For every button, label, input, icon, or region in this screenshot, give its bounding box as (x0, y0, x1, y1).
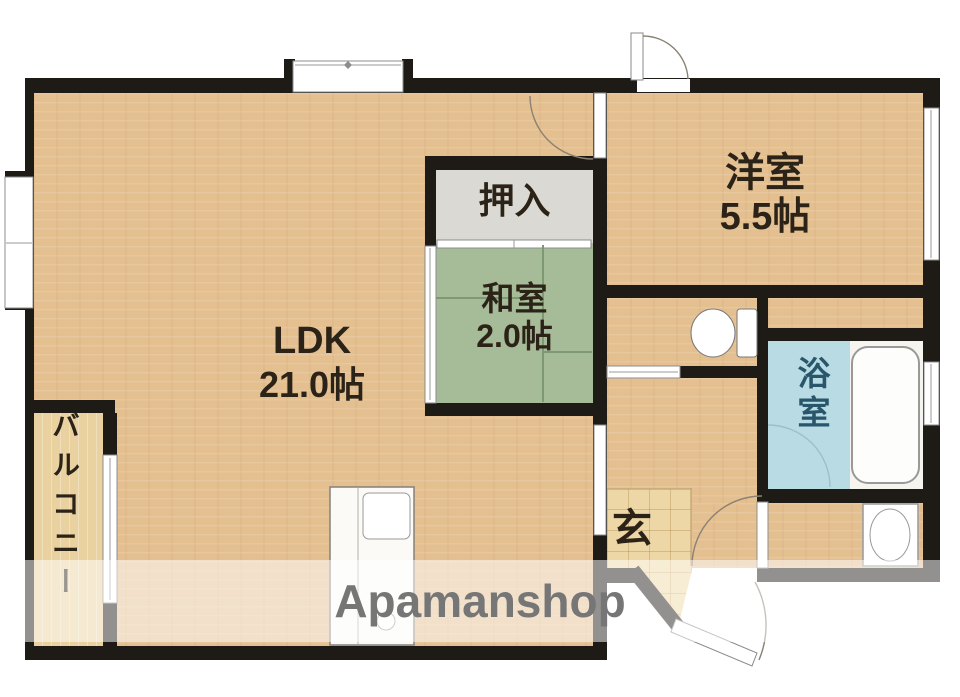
wall-east-horizontal (593, 285, 940, 298)
wall-washitsu-bottom (425, 403, 607, 416)
western-room-name: 洋室 (725, 151, 805, 195)
wall-bath-bottom (757, 489, 923, 503)
wall-oshiire-left (425, 156, 436, 248)
oshiire-label: 押入 (436, 180, 593, 221)
ldk-label: LDK 21.0帖 (212, 320, 412, 405)
ldk-size: 21.0帖 (212, 364, 412, 405)
wall-bottom-left (25, 646, 607, 660)
door-opening-washroom (757, 502, 768, 568)
washitsu-label: 和室 2.0帖 (436, 280, 593, 355)
bathtub (852, 347, 919, 483)
western-room-label: 洋室 5.5帖 (665, 150, 865, 240)
wall-cap-window-right (402, 59, 413, 93)
wall-oshiire-top (425, 156, 601, 170)
washitsu-name: 和室 (482, 280, 548, 317)
toilet-bowl (691, 309, 735, 357)
door-opening-top (637, 79, 690, 92)
oshiire-name: 押入 (478, 180, 550, 221)
bathroom-label: 浴室 (787, 356, 835, 486)
door-leaf-top (631, 33, 643, 80)
wall-toilet-bottom (680, 366, 757, 378)
wall-top (25, 78, 940, 93)
door-arc-top-exterior (643, 36, 688, 79)
door-arc-washroom (692, 496, 762, 566)
wall-bath-left (757, 298, 768, 497)
door-arc-ldk-western (530, 96, 593, 159)
kitchen-sink (363, 493, 410, 539)
ldk-name: LDK (273, 320, 351, 362)
genkan-label: 玄 (612, 506, 672, 552)
watermark-text: Apamanshop (330, 574, 630, 628)
toilet-tank (737, 309, 757, 357)
wall-balcony-right-upper (103, 413, 117, 457)
western-room-size: 5.5帖 (665, 196, 865, 240)
door-opening-ldk-hall (594, 425, 606, 535)
wall-bath-top (757, 328, 940, 341)
door-opening-ldk-western (594, 93, 606, 158)
washitsu-size: 2.0帖 (436, 318, 593, 355)
